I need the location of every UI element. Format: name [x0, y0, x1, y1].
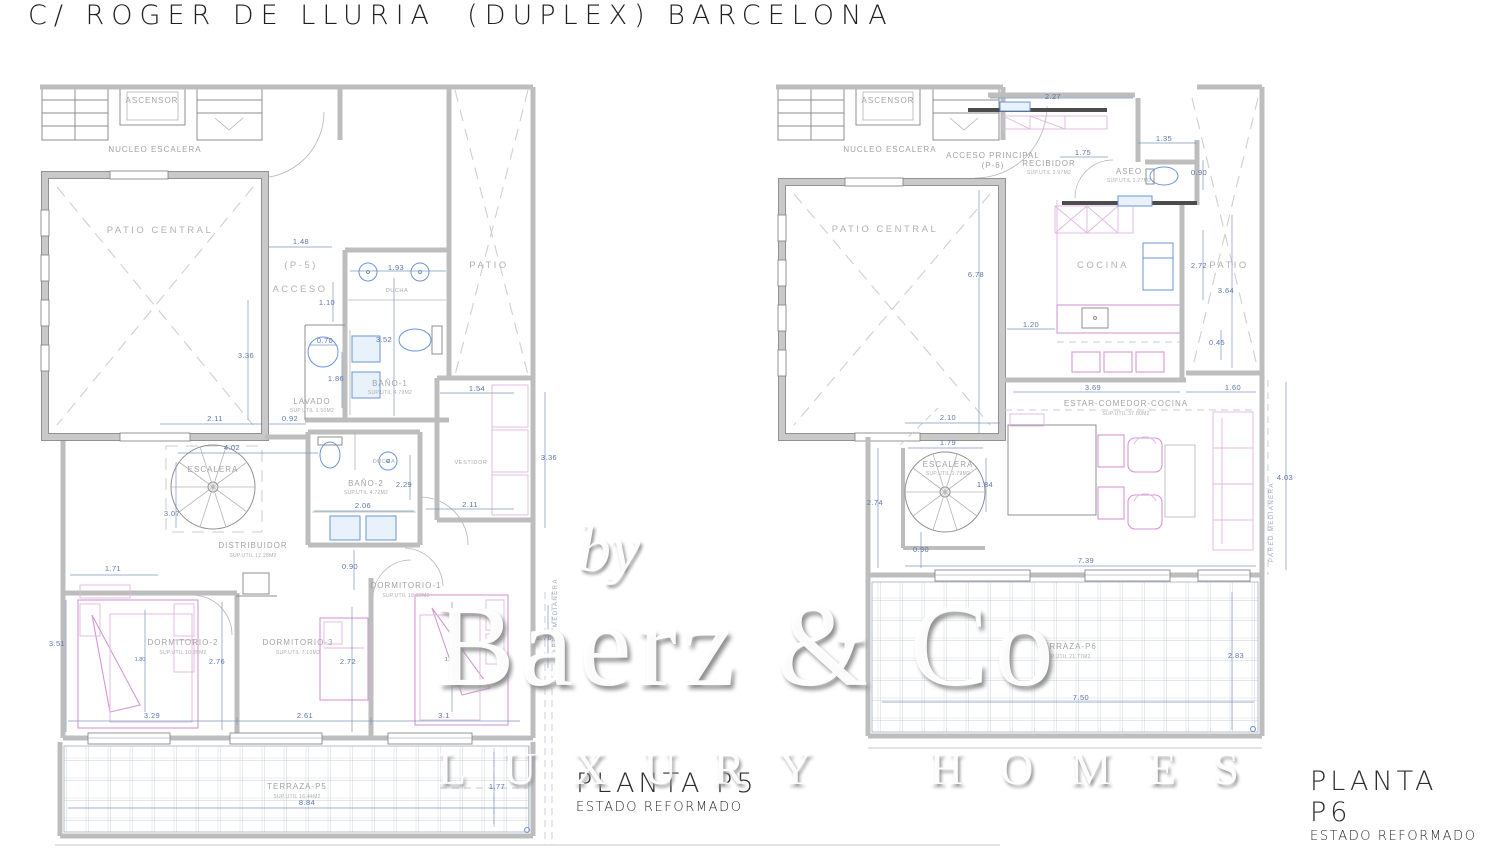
dim-label: 0.92: [282, 414, 298, 423]
dim-label: 0.90: [913, 545, 929, 554]
room-label: SUP.UTIL 1.27M2: [1107, 178, 1151, 184]
dim-label: 1.71: [105, 564, 121, 573]
dim-label: 1.75: [1075, 148, 1091, 157]
toilet-icon: [320, 442, 340, 468]
dim-label: 3.69: [1085, 383, 1101, 392]
room-label: COCINA: [1077, 260, 1129, 271]
stair-core-icon: [778, 87, 999, 140]
stool-icon: [1072, 352, 1100, 372]
room-label: DUCHA: [386, 288, 409, 294]
spiral-staircase-icon: [166, 445, 262, 532]
room-label: SUP.UTIL 4.72M2: [344, 490, 388, 496]
room-label: ACCESO: [272, 284, 327, 295]
bed-icon: [415, 595, 508, 725]
stool-icon: [1104, 352, 1132, 372]
kitchen-island-icon: [1057, 305, 1180, 333]
room-label: SUP.UTIL 4.79M2: [368, 390, 412, 396]
sink-icon: [1000, 102, 1030, 111]
patio-right-p6: [1192, 98, 1258, 370]
dim-label: 1.86: [328, 374, 344, 383]
room-label: (P-6): [982, 161, 1005, 170]
dim-label: 3.29: [144, 711, 160, 720]
room-label: SUP.UTIL 21.77M2: [1043, 654, 1090, 660]
room-label: TERRAZA-P5: [267, 782, 327, 791]
washbasin-icon: [330, 516, 360, 540]
dim-label: 1.54: [469, 384, 485, 393]
dim-label: 2.06: [355, 501, 371, 510]
room-label: SUP.UTIL 7.10M2: [276, 650, 320, 656]
room-label: VESTIDOR: [455, 460, 488, 466]
room-label: NUCLEO ESCALERA: [843, 145, 936, 154]
room-label: PATIO CENTRAL: [107, 225, 214, 236]
stool-icon: [1136, 352, 1164, 372]
dim-label: 1.80: [135, 657, 146, 663]
bathroom-2: [308, 432, 468, 545]
dim-label: 1.35: [1156, 134, 1172, 143]
room-label: ASEO: [1116, 167, 1142, 176]
stair-core-icon: [42, 87, 262, 140]
dim-label: 3.36: [541, 453, 557, 462]
patio-central-p5: [41, 171, 269, 441]
plan-drawing: ASCENSORNUCLEO ESCALERAPATIO CENTRAL(P-5…: [0, 0, 1486, 852]
dim-label: 1.60: [1225, 383, 1241, 392]
room-label: TERRAZA-P6: [1037, 642, 1097, 651]
dim-label: 3.64: [1218, 286, 1234, 295]
room-label: BAÑO-2: [348, 479, 384, 488]
room-label: PATIO: [1209, 260, 1249, 271]
room-label: SUP.UTIL 18.22M2: [382, 593, 429, 599]
room-label: ESCALERA: [923, 460, 974, 469]
dim-label: 1.20: [1023, 320, 1039, 329]
plan-title-p5: PLANTA P5 ESTADO REFORMADO: [576, 768, 758, 815]
dim-label: 4.02: [224, 443, 240, 452]
cabinet-icon: [1055, 206, 1133, 233]
dim-label: 2.11: [462, 500, 478, 509]
dim-label: 2.72: [1191, 261, 1207, 270]
plan-title-p6-sub: ESTADO REFORMADO: [1310, 829, 1486, 844]
dim-label: 3.07: [164, 509, 180, 518]
room-label: (P-5): [284, 260, 318, 271]
plan-title-p5-main: PLANTA P5: [576, 768, 758, 799]
dim-label: 4.03: [1277, 473, 1293, 482]
dim-label: 3.1: [438, 711, 450, 720]
dim-label: 2.61: [297, 711, 313, 720]
sofa-icon: [1213, 412, 1253, 550]
dim-label: 1.93: [388, 263, 404, 272]
room-label: LAVADO: [293, 397, 330, 406]
toilet-icon: [399, 329, 431, 351]
dim-label: 1.48: [293, 237, 309, 246]
room-label: PATIO CENTRAL: [832, 224, 939, 235]
spiral-staircase-icon: [900, 408, 985, 548]
dim-label: 2.10: [940, 413, 956, 422]
chair-icon: [1098, 435, 1124, 467]
armchair-icon: [1128, 495, 1162, 529]
kitchen: [968, 87, 1262, 380]
dim-label: 0.45: [1209, 338, 1225, 347]
chair-icon: [1098, 487, 1124, 519]
room-label: SUP.UTIL 2.97M2: [1027, 170, 1071, 176]
floorplan-sheet: C/ ROGER DE LLURIA (DUPLEX) BARCELONA: [0, 0, 1486, 852]
floor-plan-p5: ASCENSORNUCLEO ESCALERAPATIO CENTRAL(P-5…: [40, 87, 1000, 845]
room-label: ASCENSOR: [126, 96, 179, 105]
room-label: SUP.UTIL 37.80M2: [1102, 411, 1149, 417]
washbasin-icon: [1118, 196, 1152, 206]
room-label: BAÑO-1: [372, 379, 408, 388]
property-line: [545, 592, 552, 845]
room-label: ASCENSOR: [862, 96, 915, 105]
dim-label: 2.11: [207, 414, 223, 423]
dim-label: 7.50: [1073, 693, 1089, 702]
dim-label: 0.70: [317, 336, 333, 345]
room-label: DUCHA: [373, 459, 396, 465]
room-label: PARED MEDIANERA: [553, 578, 559, 658]
drawing-title: C/ ROGER DE LLURIA (DUPLEX) BARCELONA: [28, 0, 894, 31]
room-label: DORMITORIO-3: [263, 638, 334, 647]
room-label: DORMITORIO-2: [148, 638, 219, 647]
room-label: RECIBIDOR: [1022, 159, 1075, 168]
floor-plan-p6: ASCENSORNUCLEO ESCALERAACCESO PRINCIPAL(…: [776, 87, 1293, 748]
plan-title-p5-sub: ESTADO REFORMADO: [576, 800, 758, 815]
dim-label: 0.90: [1191, 168, 1207, 177]
dining-table-icon: [1008, 425, 1096, 515]
dim-label: 2.74: [867, 498, 883, 507]
dim-label: 1.76: [536, 633, 552, 642]
dim-label: 3.52: [376, 335, 392, 344]
patio-right-p5: [455, 90, 528, 375]
dim-label: 1.84: [977, 480, 993, 489]
plan-title-p6: PLANTA P6 ESTADO REFORMADO: [1310, 766, 1486, 844]
room-label: NUCLEO ESCALERA: [108, 145, 201, 154]
dim-label: 1.10: [319, 298, 335, 307]
room-label: PARED MEDIANERA: [1269, 482, 1275, 562]
room-label: ESCALERA: [188, 465, 239, 474]
dim-label: 0.90: [342, 562, 358, 571]
dim-label: 1.77: [489, 782, 505, 791]
dim-label: 1.80: [445, 657, 456, 663]
room-label: SUP.UTIL 1.79M2: [926, 471, 970, 477]
dim-label: 2.72: [340, 657, 356, 666]
dim-label: 7.39: [1078, 556, 1094, 565]
dim-label: 3.51: [49, 639, 65, 648]
p5-room-labels: ASCENSORNUCLEO ESCALERAPATIO CENTRAL(P-5…: [107, 96, 559, 800]
cabinet-icon: [243, 573, 269, 594]
dim-label: 3.36: [238, 351, 254, 360]
coffee-table-icon: [1165, 445, 1195, 517]
dim-label: 2.76: [209, 657, 225, 666]
room-label: SUP.UTIL 10.35M2: [159, 650, 206, 656]
plan-title-p6-main: PLANTA P6: [1310, 766, 1486, 828]
walk-in-closet: [437, 378, 533, 520]
refrigerator-icon: [1143, 243, 1173, 290]
dim-label: 1.79: [940, 438, 956, 447]
room-label: ESTAR-COMEDOR-COCINA: [1064, 399, 1188, 408]
armchair-icon: [1128, 438, 1162, 472]
dim-label: 6.78: [968, 270, 984, 279]
washbasin-icon: [366, 516, 396, 540]
patio-central-p6: [778, 178, 1006, 441]
door-swing-icon: [258, 112, 324, 178]
room-label: PATIO: [469, 260, 509, 271]
room-label: DISTRIBUIDOR: [218, 541, 287, 550]
room-label: DORMITORIO-1: [371, 581, 442, 590]
dim-label: 2.27: [1045, 92, 1061, 101]
room-label: SUP.UTIL 12.28M2: [229, 553, 276, 559]
dim-label: 8.84: [299, 798, 315, 807]
dim-label: 2.83: [1228, 651, 1244, 660]
dim-label: 2.29: [396, 480, 412, 489]
